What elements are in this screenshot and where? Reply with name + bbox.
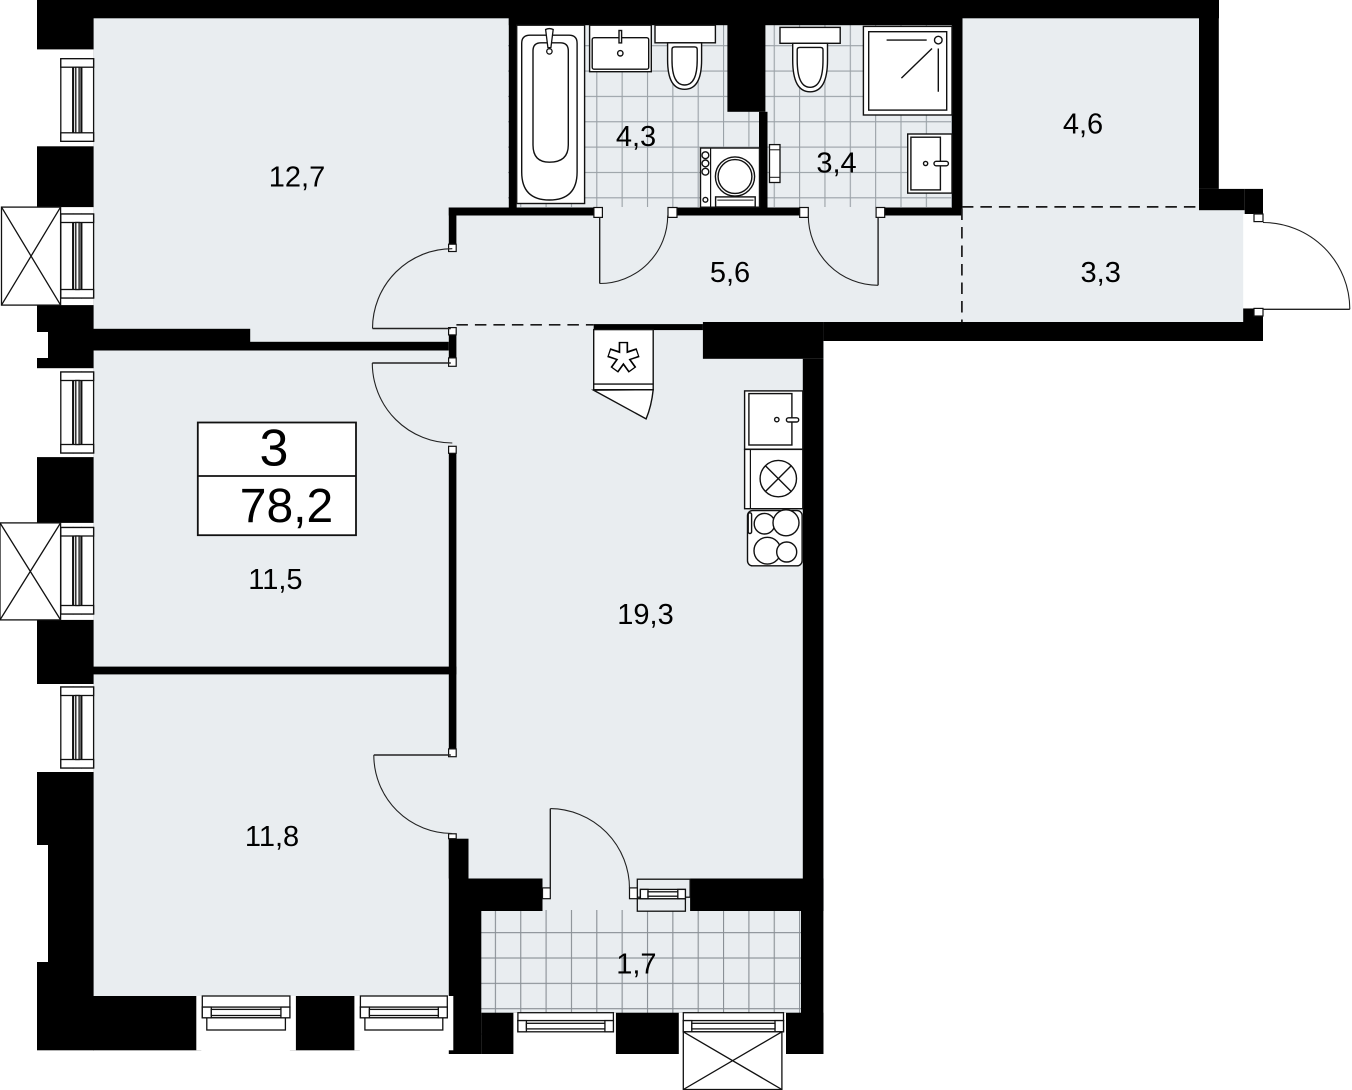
svg-text:19,3: 19,3 xyxy=(617,599,673,631)
svg-text:1,7: 1,7 xyxy=(616,948,656,980)
svg-text:3,4: 3,4 xyxy=(816,148,856,180)
svg-text:4,3: 4,3 xyxy=(616,121,656,153)
svg-text:12,7: 12,7 xyxy=(269,162,325,194)
svg-text:11,8: 11,8 xyxy=(245,821,299,853)
svg-text:3,3: 3,3 xyxy=(1081,257,1121,289)
svg-text:3: 3 xyxy=(260,420,289,478)
svg-text:4,6: 4,6 xyxy=(1063,108,1103,140)
svg-text:11,5: 11,5 xyxy=(248,564,302,596)
svg-text:5,6: 5,6 xyxy=(710,257,750,289)
svg-text:78,2: 78,2 xyxy=(240,480,333,533)
